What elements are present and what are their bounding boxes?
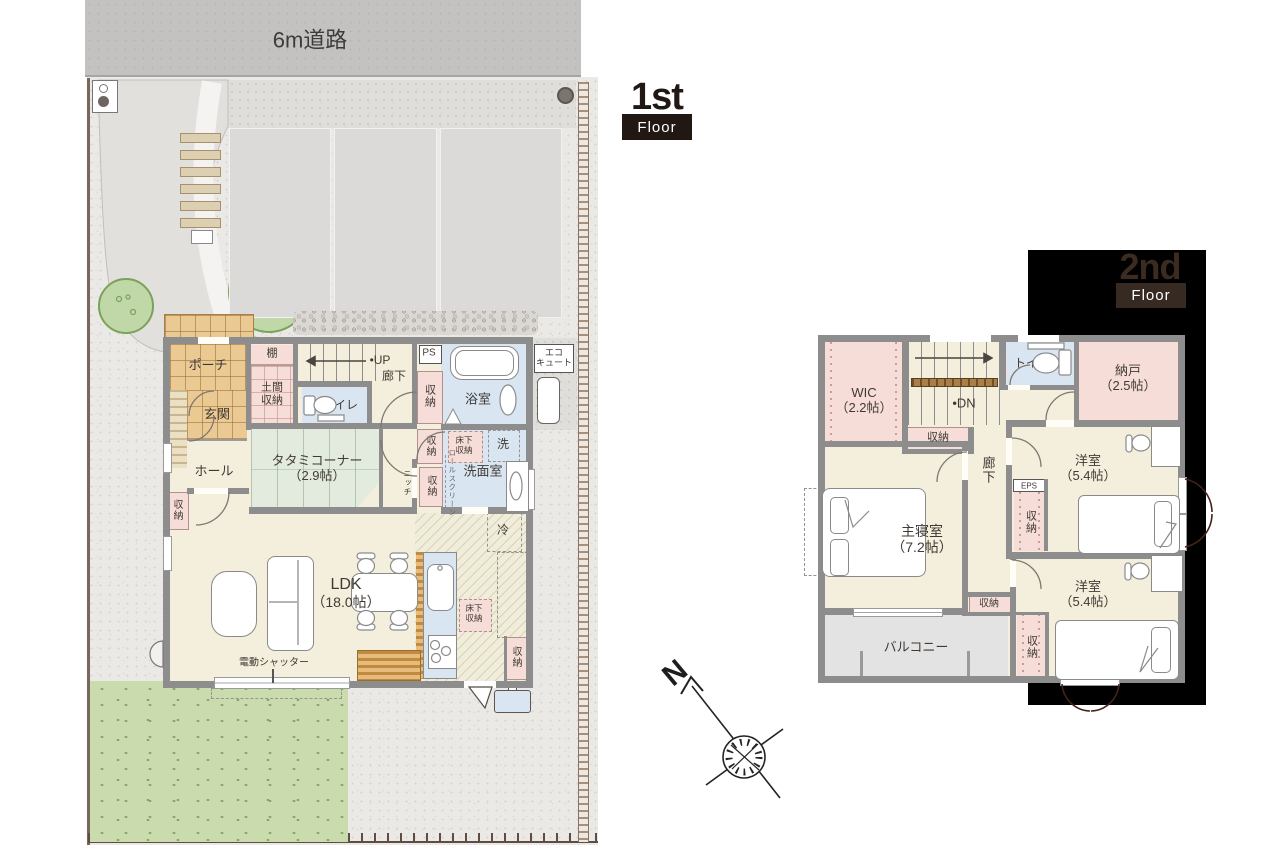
storage-label: 収納 — [424, 384, 435, 408]
window — [930, 335, 991, 342]
shutter-label: 電動シャッター — [239, 657, 309, 669]
compass-arrowhead — [681, 677, 703, 694]
niche-recess — [412, 468, 417, 498]
entrance-step-line — [187, 439, 247, 441]
eco-line2: キュート — [536, 358, 572, 368]
parking-space — [440, 128, 562, 318]
parking-space — [229, 128, 331, 318]
floor2-badge-box: Floor — [1116, 283, 1186, 308]
window — [163, 536, 172, 571]
staircase-1f — [297, 344, 377, 381]
master-bedroom-label: 主寝室 （7.2帖） — [891, 523, 952, 555]
door-opening — [962, 451, 968, 480]
pantry-space — [497, 552, 528, 638]
desk — [1151, 426, 1181, 467]
wic-line2: （2.2帖） — [835, 401, 892, 416]
grass-garden — [90, 681, 348, 842]
shelf-label: 棚 — [267, 348, 278, 361]
storage-label: 収納 — [424, 435, 434, 457]
west1-line2: （5.4帖） — [1059, 469, 1116, 484]
shutter-box-outline — [211, 688, 342, 699]
road-apron — [228, 80, 576, 128]
wall — [818, 335, 1185, 342]
utility-dot-icon — [98, 96, 109, 107]
manhole-icon — [557, 87, 574, 104]
stepping-stone — [180, 133, 221, 143]
wic-label: WIC （2.2帖） — [835, 386, 892, 416]
balcony-label: バルコニー — [884, 641, 949, 656]
wood-deck — [357, 650, 421, 681]
storage-label: 収納 — [510, 646, 520, 668]
wall — [902, 342, 908, 454]
corridor-label-2f: 廊下 — [982, 456, 995, 484]
stepping-stone — [180, 184, 221, 194]
wall — [1044, 479, 1048, 551]
window — [853, 608, 943, 617]
corridor-label-1f: 廊下 — [382, 370, 406, 384]
west2-line2: （5.4帖） — [1059, 595, 1116, 610]
boundary-fence-right — [578, 82, 589, 842]
balcony-partition — [967, 651, 970, 676]
gravel-band — [293, 311, 538, 335]
rollscreen-label: ロールスクリーン — [448, 449, 456, 517]
wall — [249, 507, 417, 514]
storage-label: 収納 — [927, 432, 949, 445]
door-opening — [462, 507, 488, 514]
pillow — [830, 539, 849, 576]
doma-line2: 収納 — [261, 394, 283, 407]
storage-label: 収納 — [1026, 635, 1037, 659]
wall — [1045, 614, 1049, 676]
wall — [1000, 342, 1006, 390]
storeroom-line2: （2.5帖） — [1099, 379, 1156, 394]
bathtub-inner — [455, 350, 514, 376]
wall — [379, 427, 383, 508]
hall-label: ホール — [194, 465, 233, 480]
sofa-seat-line — [269, 601, 298, 603]
uf2-line2: 収納 — [465, 614, 482, 624]
tatami-line1: タタミコーナー — [271, 454, 362, 469]
west-room1-label: 洋室 （5.4帖） — [1059, 454, 1116, 484]
entrance-side-step — [170, 390, 187, 468]
wall — [163, 337, 170, 688]
washer-label: 洗 — [497, 438, 509, 452]
shutter-tick — [272, 669, 274, 683]
doma-line1: 土間 — [261, 381, 283, 394]
floor1-badge-box: Floor — [622, 114, 692, 140]
window — [214, 677, 350, 689]
stepping-stone — [180, 167, 221, 177]
storeroom-label: 納戸 （2.5帖） — [1099, 364, 1156, 394]
vanity-unit — [506, 461, 529, 512]
balcony-partition — [860, 651, 863, 676]
door-opening — [1046, 420, 1074, 427]
floor1-badge-small: Floor — [637, 119, 676, 136]
wall — [297, 381, 372, 387]
window — [1018, 335, 1059, 342]
door-opening — [464, 681, 496, 688]
wall — [962, 612, 1012, 616]
door-opening — [1006, 438, 1012, 465]
floor-plan-canvas: 6m道路 — [0, 0, 1280, 850]
ecocute-tank — [537, 377, 560, 424]
door-opening — [194, 488, 228, 494]
pillow — [1151, 627, 1171, 673]
outdoor-unit — [494, 690, 531, 713]
sofa — [267, 556, 314, 651]
stepping-stone — [180, 201, 221, 211]
uf-line2: 収納 — [455, 446, 472, 456]
stove — [428, 635, 457, 669]
parking-space — [334, 128, 437, 318]
wall — [526, 337, 533, 688]
utility-circle-icon — [99, 84, 108, 93]
stepping-stone — [180, 150, 221, 160]
pillow — [830, 497, 849, 534]
toilet-label-1f: トイレ — [322, 399, 358, 413]
wall — [962, 592, 1012, 597]
wall — [246, 344, 251, 430]
stepping-stone — [180, 218, 221, 228]
storage-label: 収納 — [425, 475, 435, 497]
toilet-label-2f: トイレ — [1014, 357, 1050, 371]
wall — [412, 344, 417, 427]
wall — [504, 636, 507, 681]
wall — [441, 424, 526, 430]
up-label: •UP — [370, 354, 391, 368]
wall — [1074, 342, 1079, 425]
wall — [246, 423, 417, 429]
compass-n: N — [656, 653, 694, 692]
underfloor-storage-label: 床下 収納 — [455, 436, 472, 456]
porch-entry-opening — [198, 337, 229, 344]
washroom-label: 洗面室 — [463, 465, 502, 480]
porch-label: ポーチ — [188, 359, 227, 374]
storage-label: 収納 — [979, 598, 999, 610]
dn-label: •DN — [952, 397, 975, 412]
wall — [1010, 612, 1049, 615]
pillow — [1154, 501, 1172, 547]
stair-handrail — [911, 378, 998, 387]
eps-label: EPS — [1021, 481, 1037, 490]
floor2-badge-big: 2nd — [1114, 246, 1186, 288]
window — [163, 443, 172, 473]
shelf-divider — [251, 364, 293, 366]
door-opening — [1008, 385, 1030, 390]
desk — [1151, 555, 1183, 592]
west1-line1: 洋室 — [1059, 454, 1116, 469]
ldk-line1: LDK — [311, 576, 380, 594]
wic-line1: WIC — [835, 386, 892, 401]
doma-storage-label: 土間 収納 — [261, 381, 283, 406]
ps-label: PS — [422, 347, 435, 359]
meter-box — [191, 230, 213, 244]
floor1-badge-big: 1st — [620, 76, 694, 119]
coffee-table — [211, 571, 257, 637]
eco-line1: エコ — [536, 348, 572, 358]
entrance-label: 玄関 — [204, 408, 230, 423]
master-line2: （7.2帖） — [891, 539, 952, 555]
roll-screen-line — [445, 455, 447, 508]
storage-label: 収納 — [171, 499, 181, 521]
wall — [968, 427, 974, 454]
west2-line1: 洋室 — [1059, 580, 1116, 595]
storeroom-line1: 納戸 — [1099, 364, 1156, 379]
fridge-label: 冷 — [497, 524, 509, 538]
ldk-label: LDK （18.0帖） — [311, 576, 380, 610]
ecocute-label: エコ キュート — [536, 348, 572, 369]
road-label: 6m道路 — [273, 27, 348, 52]
storage-label: 収納 — [1025, 510, 1036, 534]
kitchen-sink — [427, 564, 454, 611]
tatami-label: タタミコーナー （2.9帖） — [271, 454, 362, 484]
west-room2-label: 洋室 （5.4帖） — [1059, 580, 1116, 610]
master-line1: 主寝室 — [891, 523, 952, 539]
door-opening — [1010, 560, 1016, 587]
tatami-line2: （2.9帖） — [271, 469, 362, 484]
bath-label: 浴室 — [465, 393, 491, 408]
niche-label: ニッチ — [403, 470, 411, 497]
floor2-badge-small: Floor — [1131, 287, 1170, 304]
compass: N — [656, 653, 783, 798]
underfloor-storage-label: 床下 収納 — [465, 604, 482, 624]
ldk-line2: （18.0帖） — [311, 594, 380, 610]
